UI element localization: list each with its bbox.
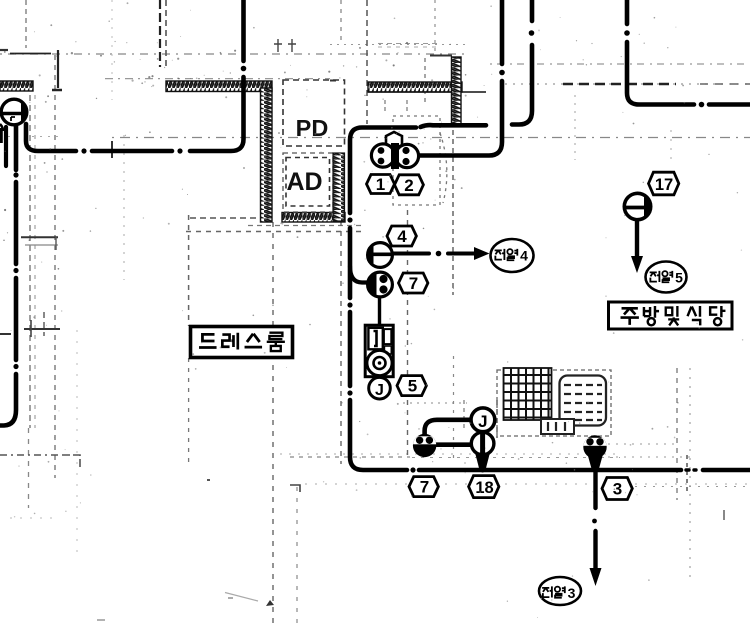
svg-text:3: 3	[568, 585, 576, 601]
svg-text:J: J	[375, 382, 384, 399]
svg-text:5: 5	[408, 377, 417, 396]
svg-text:1: 1	[376, 175, 385, 194]
svg-text:4: 4	[397, 227, 407, 246]
svg-text:AD: AD	[286, 168, 322, 196]
svg-text:4: 4	[520, 248, 528, 264]
svg-text:5: 5	[675, 270, 683, 286]
svg-text:PD: PD	[296, 115, 329, 141]
svg-text:2: 2	[404, 176, 413, 195]
svg-text:17: 17	[655, 176, 673, 194]
svg-text:7: 7	[409, 274, 418, 293]
svg-text:J: J	[478, 412, 487, 431]
svg-text:18: 18	[475, 479, 493, 497]
svg-text:7: 7	[420, 478, 429, 497]
